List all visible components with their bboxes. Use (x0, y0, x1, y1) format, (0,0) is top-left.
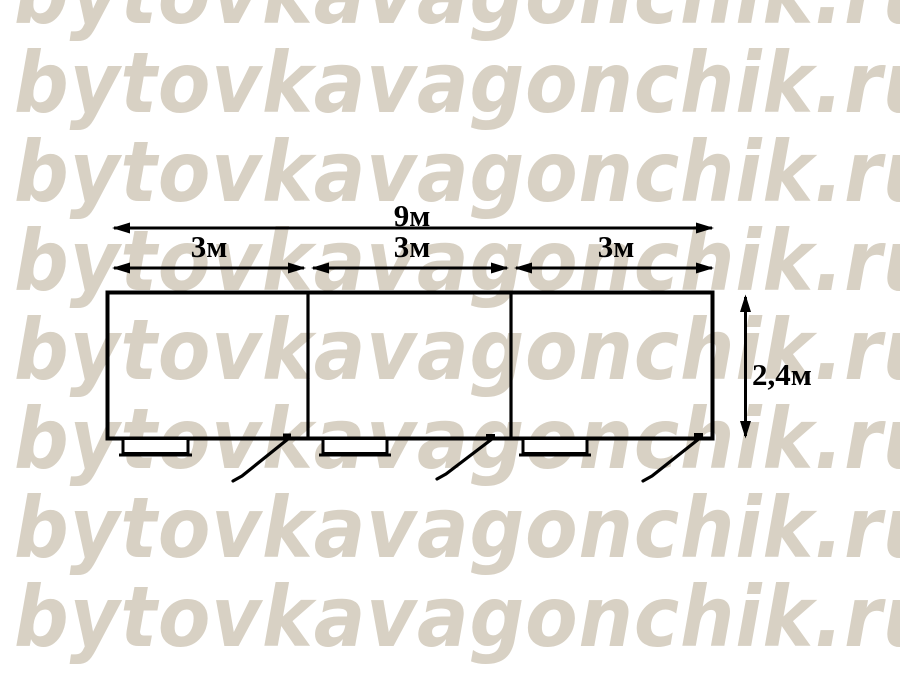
height-dimension: 2,4м (740, 295, 812, 439)
arrowhead-right-icon (696, 263, 714, 274)
arrowhead-right-icon (696, 223, 714, 234)
arrowhead-left-icon (112, 263, 130, 274)
arrowhead-right-icon (491, 263, 509, 274)
arrowhead-left-icon (514, 263, 532, 274)
cabin-plan-diagram: 9м 3м 3м 3м 2,4м (0, 0, 900, 675)
section-1-dimension-label: 3м (191, 229, 228, 264)
section-dimensions: 3м 3м 3м (112, 229, 714, 274)
arrowhead-left-icon (112, 223, 130, 234)
width-dimension-label: 9м (394, 198, 431, 233)
section-3-dimension-label: 3м (598, 229, 635, 264)
door-step-2 (323, 439, 387, 454)
arrowhead-right-icon (288, 263, 306, 274)
door-swing-line-1 (233, 439, 288, 481)
arrowhead-up-icon (740, 295, 751, 313)
page: bytovkavagonchik.ru bytovkavagonchik.ru … (0, 0, 900, 675)
building-outline (108, 293, 713, 439)
door-swing-line-2 (437, 439, 492, 479)
arrowhead-left-icon (311, 263, 329, 274)
door-swing-line-3 (643, 438, 700, 481)
door-step-3 (523, 439, 587, 454)
section-2-dimension-label: 3м (394, 229, 431, 264)
arrowhead-down-icon (740, 421, 751, 439)
door-steps (119, 439, 591, 456)
door-step-1 (123, 439, 188, 454)
height-dimension-label: 2,4м (752, 357, 812, 392)
